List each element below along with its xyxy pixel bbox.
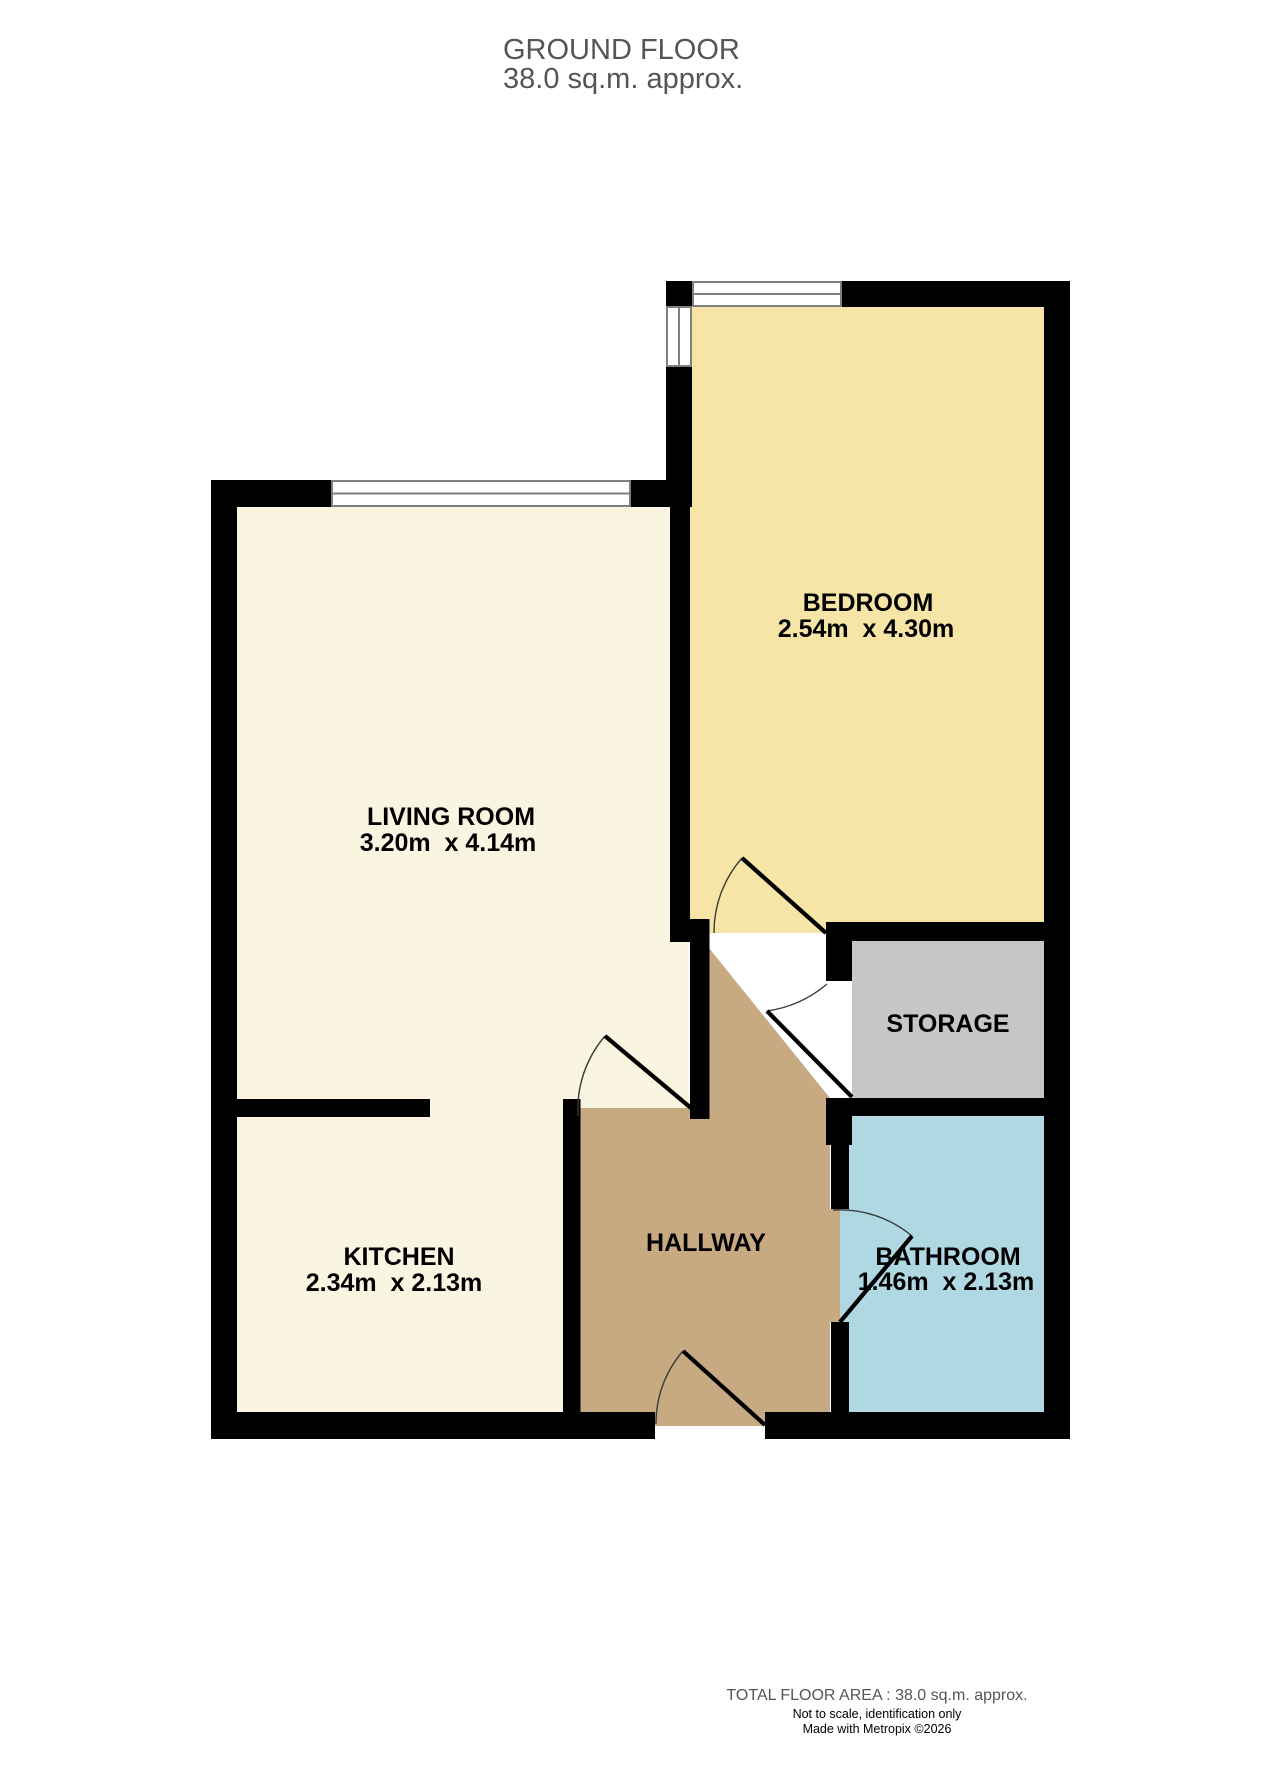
svg-text:3.20m x 4.14m: 3.20m x 4.14m bbox=[360, 829, 537, 857]
svg-text:38.0 sq.m. approx.: 38.0 sq.m. approx. bbox=[503, 63, 743, 95]
svg-text:Not to scale, identification o: Not to scale, identification only bbox=[793, 1707, 963, 1721]
svg-text:1.46m x 2.13m: 1.46m x 2.13m bbox=[858, 1268, 1035, 1296]
svg-text:BEDROOM: BEDROOM bbox=[803, 589, 934, 617]
svg-text:HALLWAY: HALLWAY bbox=[646, 1229, 766, 1257]
svg-text:Made with Metropix ©2026: Made with Metropix ©2026 bbox=[803, 1722, 952, 1736]
svg-text:GROUND FLOOR: GROUND FLOOR bbox=[503, 34, 740, 66]
svg-text:2.54m x 4.30m: 2.54m x 4.30m bbox=[778, 615, 955, 643]
svg-text:TOTAL FLOOR AREA : 38.0 sq.m.: TOTAL FLOOR AREA : 38.0 sq.m. approx. bbox=[726, 1687, 1027, 1704]
svg-text:KITCHEN: KITCHEN bbox=[343, 1243, 454, 1271]
svg-text:BATHROOM: BATHROOM bbox=[875, 1243, 1020, 1271]
svg-text:LIVING ROOM: LIVING ROOM bbox=[367, 803, 535, 831]
svg-text:STORAGE: STORAGE bbox=[886, 1010, 1009, 1038]
svg-text:2.34m x 2.13m: 2.34m x 2.13m bbox=[306, 1269, 483, 1297]
